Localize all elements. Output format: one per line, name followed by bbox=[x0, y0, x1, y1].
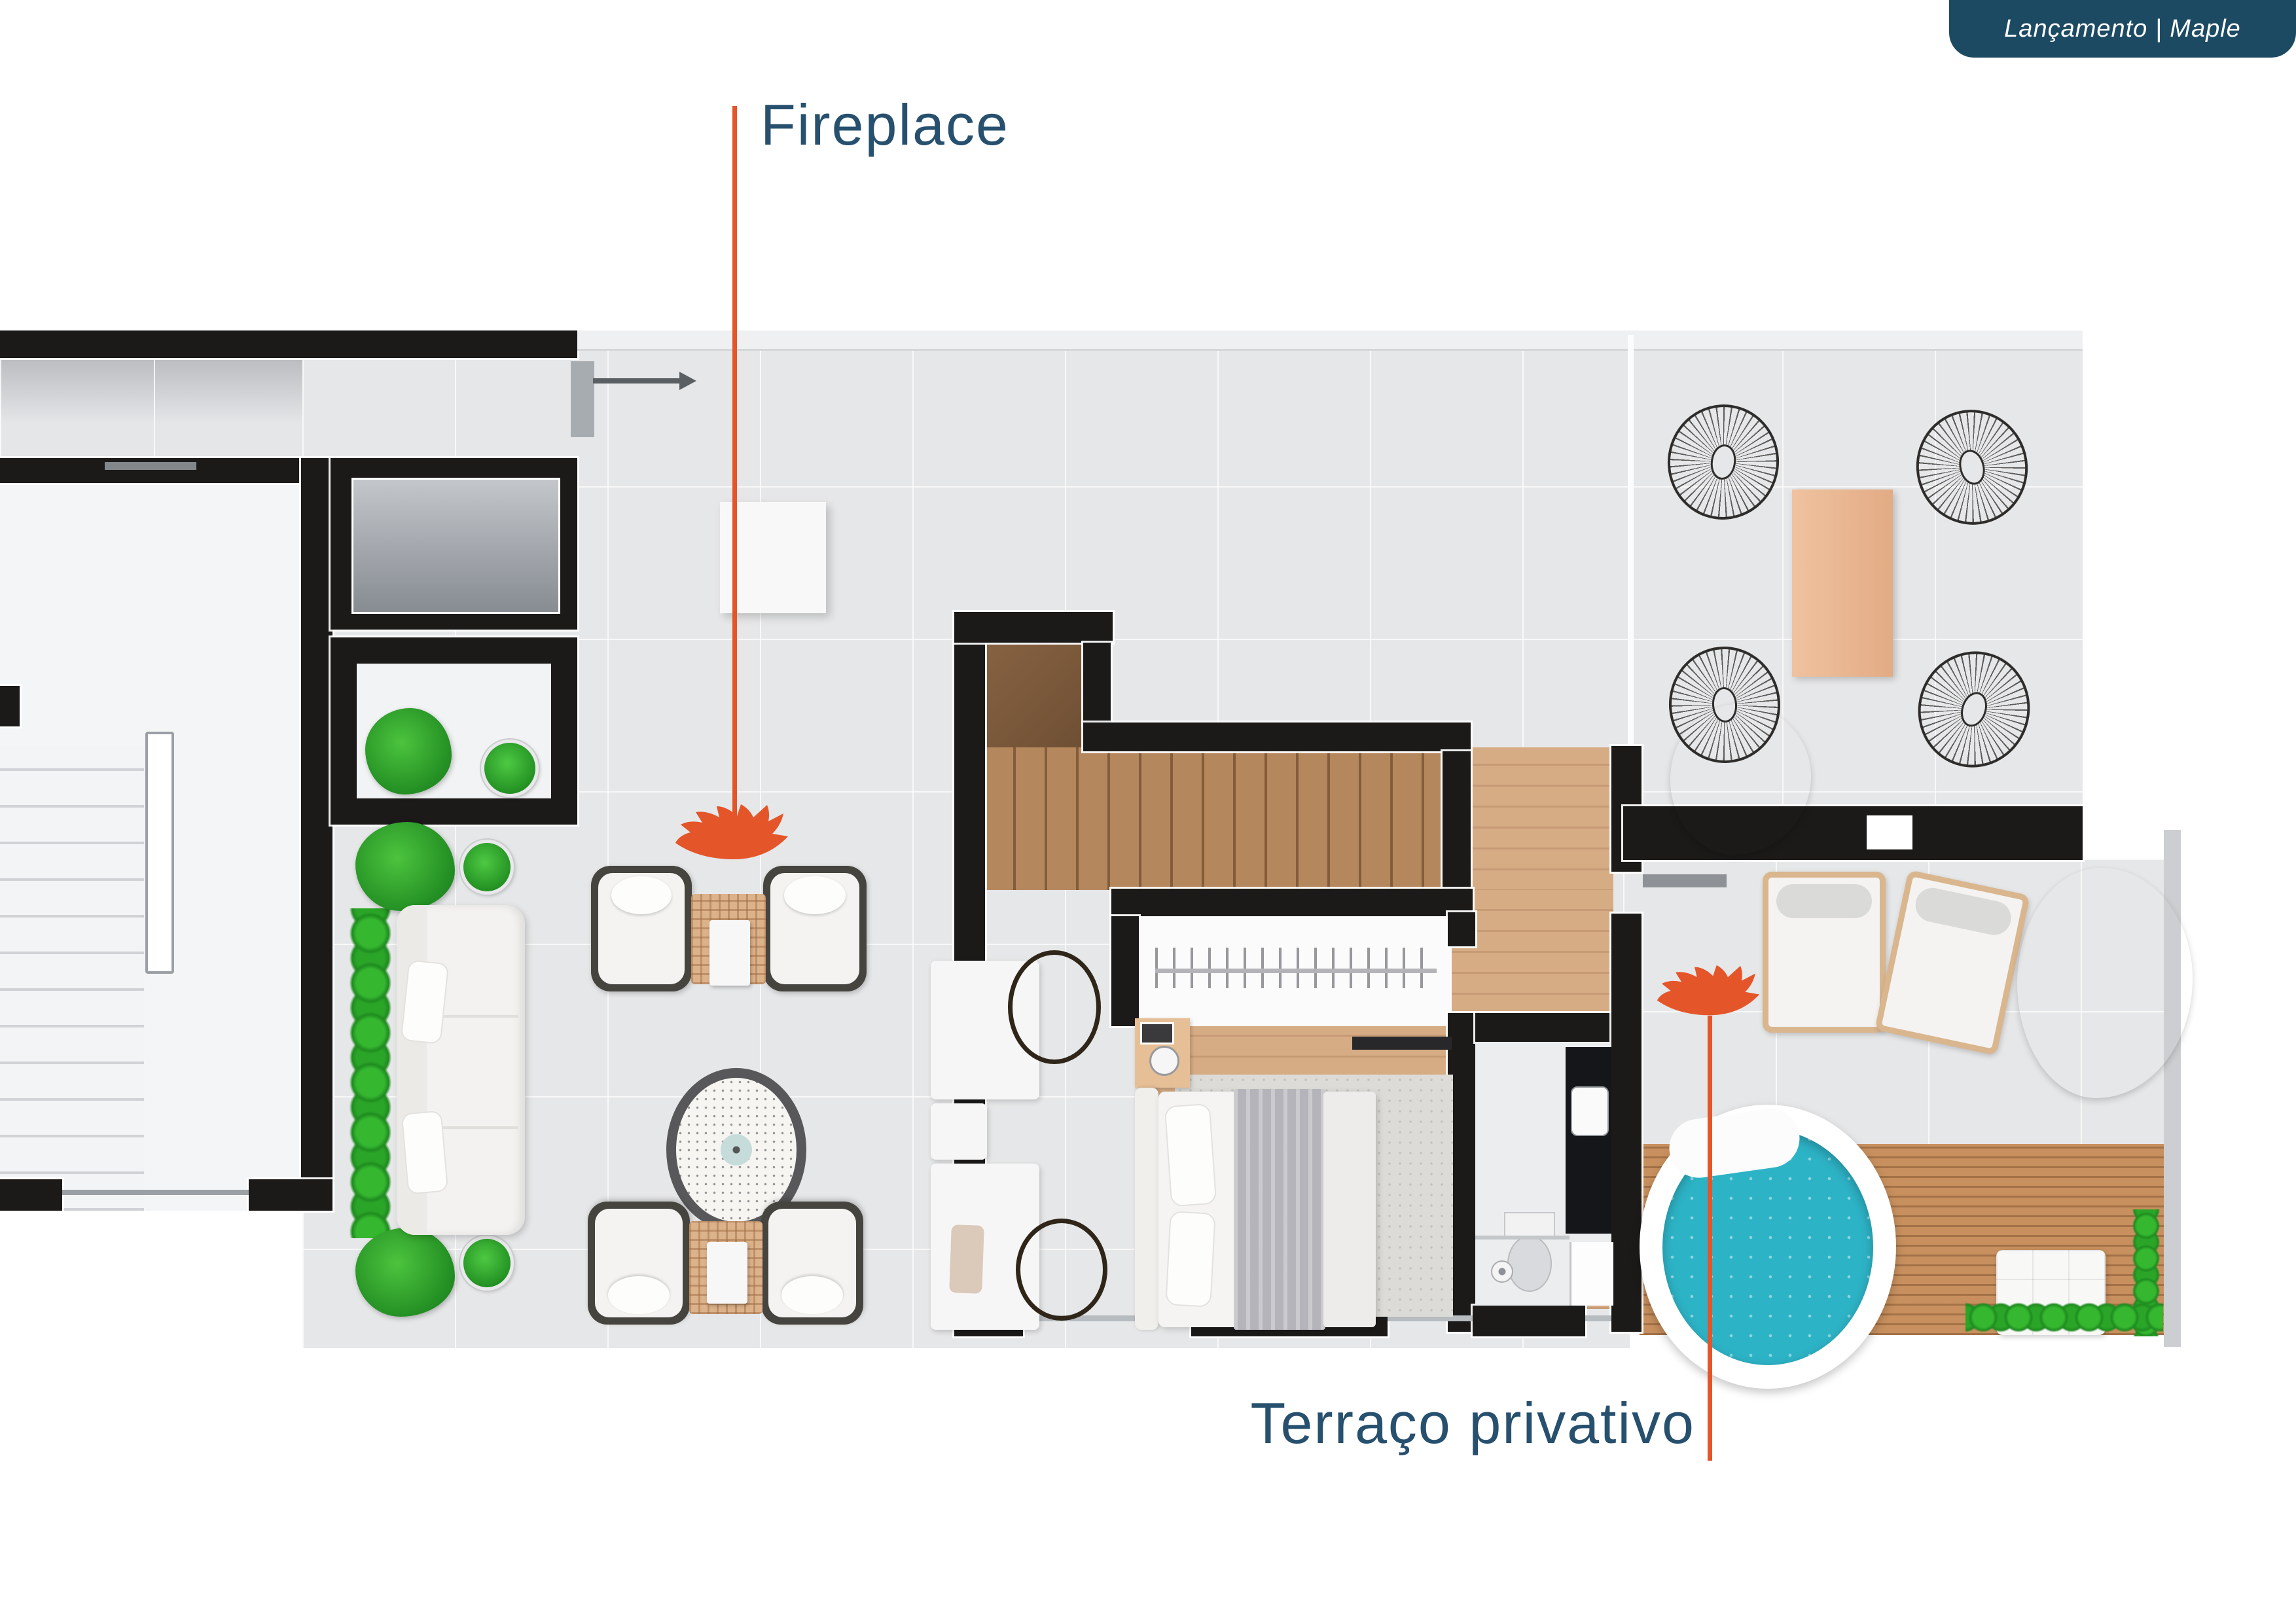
vanity-sink bbox=[1571, 1086, 1609, 1136]
wall-bed-bottom-c bbox=[1473, 1306, 1585, 1336]
vanity-counter bbox=[1566, 1047, 1611, 1234]
wall-annex-right bbox=[301, 458, 332, 1211]
annex-glass-rail bbox=[62, 1190, 249, 1195]
fireplace-label: Fireplace bbox=[761, 92, 1009, 158]
wall-stair-top bbox=[954, 612, 1113, 643]
launch-badge: Lançamento | Maple bbox=[1949, 0, 2296, 58]
bed-sheet-fold bbox=[1323, 1092, 1376, 1327]
interior-stairs-wood bbox=[982, 747, 1450, 890]
terrace-label: Terraço privativo bbox=[1106, 1390, 1695, 1457]
shower-glass bbox=[1475, 1236, 1570, 1240]
bush-top bbox=[355, 822, 455, 911]
armchair-pillow bbox=[608, 1276, 670, 1314]
bromeliad-plant-bottom bbox=[1016, 1219, 1107, 1321]
wall-top-left bbox=[0, 330, 577, 358]
bed-pillow-2 bbox=[1165, 1211, 1215, 1307]
wall-annex-stub bbox=[0, 686, 20, 726]
terrace-top-door bbox=[1867, 815, 1912, 849]
pot-plant-top bbox=[460, 840, 514, 895]
wall-annex-bottom-left bbox=[0, 1179, 62, 1211]
shower-head bbox=[1491, 1260, 1513, 1283]
hedge-column bbox=[346, 908, 395, 1238]
wall-above-stairs bbox=[1083, 722, 1471, 751]
nightstand-photo-frame bbox=[1140, 1022, 1174, 1044]
elevator-lobby-niche bbox=[571, 361, 594, 437]
door-swing-arrowhead bbox=[679, 372, 696, 390]
wall-wardrobe-top bbox=[1111, 889, 1473, 916]
side-table-tray-top bbox=[709, 920, 750, 986]
corridor-door bbox=[105, 462, 196, 470]
deck-hedge-bottom bbox=[1965, 1300, 2163, 1335]
bed-blanket bbox=[1234, 1089, 1325, 1330]
stair-landing-wood bbox=[983, 643, 1086, 749]
armchair-bottom-left bbox=[588, 1202, 690, 1325]
toilet-bowl bbox=[1507, 1236, 1552, 1292]
window-sill-c bbox=[1585, 1315, 1611, 1321]
bed-headboard bbox=[1135, 1088, 1158, 1330]
maple-leaf-icon bbox=[673, 804, 791, 861]
wood-coffee-table bbox=[1792, 490, 1893, 677]
sun-lounger-1 bbox=[1763, 872, 1886, 1033]
nightstand-clock bbox=[1149, 1046, 1179, 1076]
sofa bbox=[397, 905, 525, 1235]
floor-plan-page: Fireplace Terraço privativo Lançamento |… bbox=[0, 0, 2296, 1623]
wall-annex-bottom-right bbox=[249, 1179, 332, 1211]
tv-console bbox=[1352, 1037, 1452, 1050]
planter-pot-plant bbox=[481, 740, 539, 797]
sofa-pillow bbox=[401, 1111, 449, 1195]
wall-bath-left-stub bbox=[1448, 912, 1475, 946]
bench-pillow bbox=[949, 1224, 984, 1294]
terrace-leader-line bbox=[1708, 1016, 1712, 1461]
wall-unit-right-lower bbox=[1611, 914, 1641, 1332]
armchair-top-left bbox=[591, 866, 692, 991]
armchair-top-right bbox=[763, 866, 867, 991]
bed-pillow-1 bbox=[1164, 1103, 1217, 1207]
armchair-pillow bbox=[611, 876, 672, 914]
toilet-tank bbox=[1504, 1212, 1555, 1238]
bush-bottom bbox=[355, 1228, 455, 1317]
wall-wardrobe-left bbox=[1111, 916, 1139, 1026]
wardrobe-hangers bbox=[1155, 948, 1437, 988]
terrace-door-threshold bbox=[1643, 874, 1727, 887]
wardrobe-rail bbox=[1155, 969, 1437, 973]
wall-bath-top bbox=[1475, 1013, 1613, 1042]
planter-bush bbox=[365, 708, 452, 794]
fireplace-leader-line bbox=[732, 106, 737, 821]
terrace-divider-glass bbox=[1628, 335, 1634, 793]
stair-handrail bbox=[145, 732, 174, 974]
sofa-pillow bbox=[401, 959, 450, 1044]
door-swing-line bbox=[593, 378, 685, 383]
maple-leaf-icon bbox=[1649, 965, 1767, 1017]
bench-cube-small bbox=[931, 1103, 987, 1160]
launch-badge-text: Lançamento | Maple bbox=[2004, 15, 2241, 43]
bromeliad-plant-top bbox=[1008, 950, 1101, 1064]
shower-tray bbox=[1570, 1242, 1613, 1306]
side-table-tray-bottom bbox=[707, 1242, 747, 1304]
pot-plant-bottom bbox=[460, 1236, 514, 1291]
armchair-pillow bbox=[781, 1276, 843, 1314]
staircase-treads bbox=[0, 746, 144, 1211]
hallway-wood-floor bbox=[1448, 747, 1613, 891]
wall-stair-connector bbox=[1083, 643, 1111, 725]
armchair-pillow bbox=[784, 876, 846, 914]
armchair-bottom-right bbox=[761, 1202, 863, 1325]
roof-parapet-top bbox=[577, 330, 2083, 351]
corridor-floor bbox=[0, 357, 302, 460]
elevator-car bbox=[351, 478, 560, 614]
